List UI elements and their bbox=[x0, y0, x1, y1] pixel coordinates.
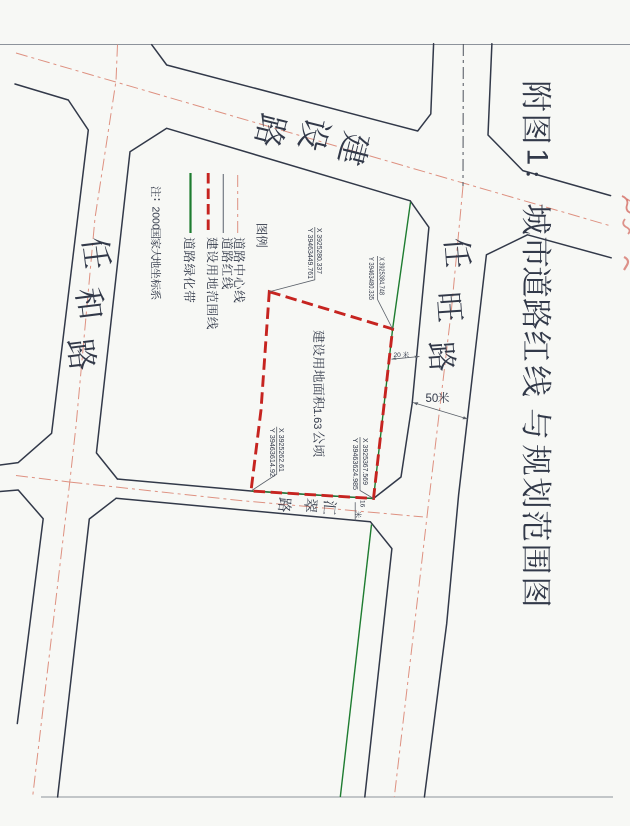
svg-text:X 3925384.748: X 3925384.748 bbox=[378, 257, 387, 295]
svg-text:16: 16 bbox=[358, 500, 365, 508]
svg-text:Y 39463624.985: Y 39463624.985 bbox=[351, 438, 360, 490]
svg-text:Y 39463449.761: Y 39463449.761 bbox=[306, 228, 315, 279]
svg-text:X 3925367.569: X 3925367.569 bbox=[361, 438, 370, 485]
svg-text:1: 1 bbox=[521, 149, 554, 166]
svg-text:X 3925262.61: X 3925262.61 bbox=[277, 428, 286, 472]
svg-text:2000: 2000 bbox=[149, 207, 160, 230]
svg-text:Y 39463614.92: Y 39463614.92 bbox=[268, 428, 277, 477]
svg-text:50: 50 bbox=[426, 393, 439, 405]
svg-text:1.63: 1.63 bbox=[311, 408, 323, 429]
svg-text:20: 20 bbox=[394, 352, 402, 359]
svg-text:X 3925280.337: X 3925280.337 bbox=[315, 228, 324, 274]
svg-text:Y 39463480.335: Y 39463480.335 bbox=[367, 257, 376, 300]
